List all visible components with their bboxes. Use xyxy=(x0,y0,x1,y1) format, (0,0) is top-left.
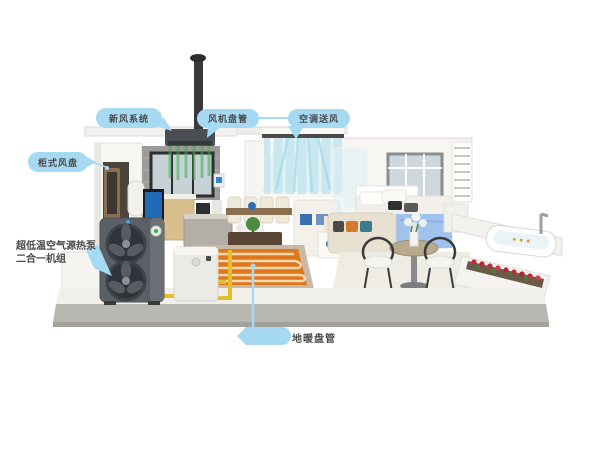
blue-bowl xyxy=(248,202,256,210)
callout-air-supply: 空调送风 xyxy=(288,109,350,128)
heat-pump-label-line2: 二合一机组 xyxy=(16,253,96,266)
controller-screen xyxy=(216,177,222,183)
teal-pillow xyxy=(360,221,372,232)
louver-panel xyxy=(452,142,472,202)
island-top xyxy=(184,214,232,219)
dark-pillow xyxy=(333,221,344,232)
orange-pillow xyxy=(346,221,358,232)
hydro-module xyxy=(174,247,218,301)
callout-fresh-air: 新风系统 xyxy=(96,108,162,128)
bedroom xyxy=(328,140,472,253)
heat-pump-label-line1: 超低温空气源热泵 xyxy=(16,240,96,253)
brand-badge-dot xyxy=(154,229,158,233)
white-flowers xyxy=(236,224,244,232)
beige-sofa xyxy=(328,213,396,253)
cabinet-front xyxy=(107,172,117,214)
water-cylinder xyxy=(128,181,144,216)
louver-slats xyxy=(454,148,470,196)
accent-pillow xyxy=(404,203,418,212)
platform-shadow xyxy=(53,322,549,327)
callout-heat-pump: 超低温空气源热泵 二合一机组 xyxy=(16,240,96,266)
pointer-floor-tag xyxy=(237,327,291,345)
callout-cabinet-fan-coil: 柜式风盘 xyxy=(28,152,88,172)
bonsai xyxy=(246,217,260,231)
table-pedestal xyxy=(411,252,417,284)
flower-vase xyxy=(410,230,418,246)
house-cutaway-illustration xyxy=(0,0,600,450)
pointer-cabinet-dot xyxy=(105,166,109,170)
accent-pillow xyxy=(388,201,402,210)
dining-table xyxy=(226,208,292,215)
kitchen-island xyxy=(184,216,232,248)
curtain-rod xyxy=(262,134,344,138)
hydro-body xyxy=(174,247,218,301)
heat-pump-unit xyxy=(100,218,164,305)
hydro-badge xyxy=(192,258,200,266)
callout-floor-heating: 地暖盘管 xyxy=(292,330,336,345)
foot xyxy=(104,301,116,305)
fan-bottom xyxy=(107,261,146,300)
beige-sofa-body xyxy=(328,213,396,253)
illustration-canvas: 新风系统 风机盘管 空调送风 柜式风盘 超低温空气源热泵 二合一机组 地暖盘管 xyxy=(0,0,600,450)
hydro-display xyxy=(206,256,211,261)
hydro-top xyxy=(174,247,218,255)
fresh-air-unit-vent xyxy=(168,141,212,145)
foot xyxy=(148,301,160,305)
callout-fan-coil: 风机盘管 xyxy=(197,109,259,128)
bathtub xyxy=(485,224,558,258)
fan-top xyxy=(107,224,146,263)
platform-fascia xyxy=(53,304,549,322)
status-led xyxy=(126,220,130,224)
roof-pipe-cap xyxy=(190,54,206,62)
blue-pillow xyxy=(300,214,312,225)
